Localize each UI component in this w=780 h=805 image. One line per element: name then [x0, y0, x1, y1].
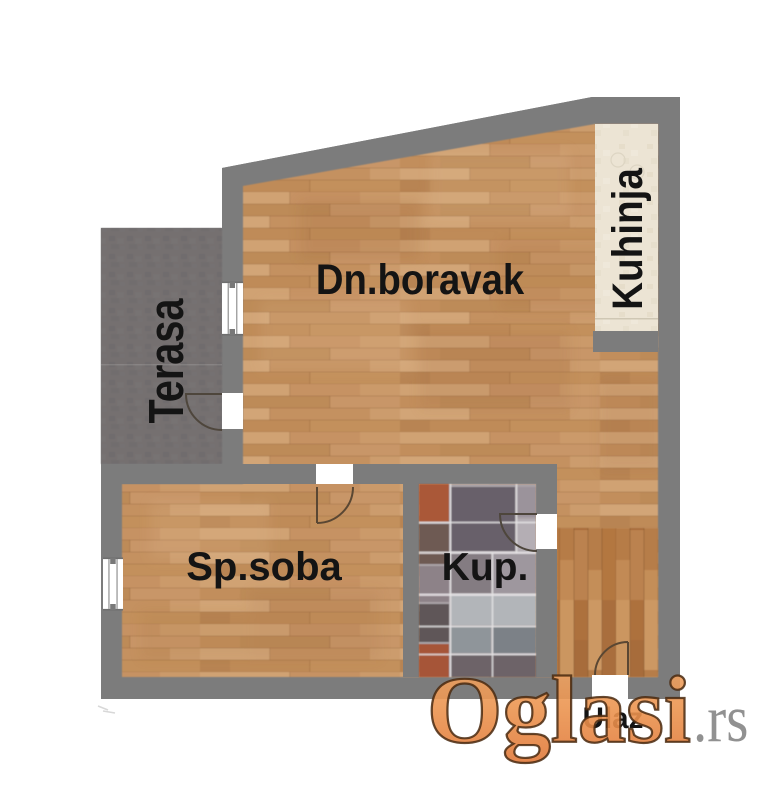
svg-text:Dn.boravak: Dn.boravak [316, 255, 525, 303]
svg-text:Oglasi: Oglasi [427, 657, 691, 763]
svg-text:Kuhinja: Kuhinja [603, 168, 651, 310]
svg-text:Sp.soba: Sp.soba [186, 545, 342, 589]
svg-text:Terasa: Terasa [140, 297, 194, 423]
svg-text:Kup.: Kup. [442, 546, 529, 589]
svg-text:.rs: .rs [693, 683, 748, 756]
